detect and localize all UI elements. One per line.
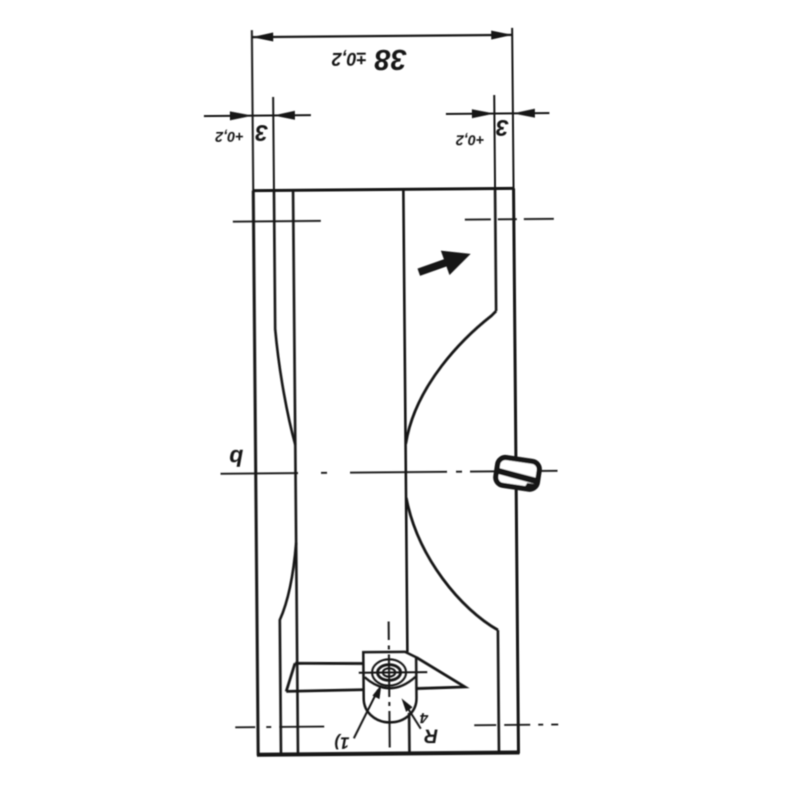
svg-text:3: 3 <box>255 120 268 146</box>
svg-text:4: 4 <box>419 709 429 726</box>
svg-text:+0,2: +0,2 <box>456 131 485 147</box>
svg-text:+0,2: +0,2 <box>215 128 244 144</box>
svg-text:3: 3 <box>496 115 509 141</box>
svg-text:38 ±0,2: 38 ±0,2 <box>331 43 407 76</box>
svg-text:R: R <box>424 724 438 745</box>
svg-text:1): 1) <box>334 733 350 752</box>
svg-text:b: b <box>229 445 243 471</box>
